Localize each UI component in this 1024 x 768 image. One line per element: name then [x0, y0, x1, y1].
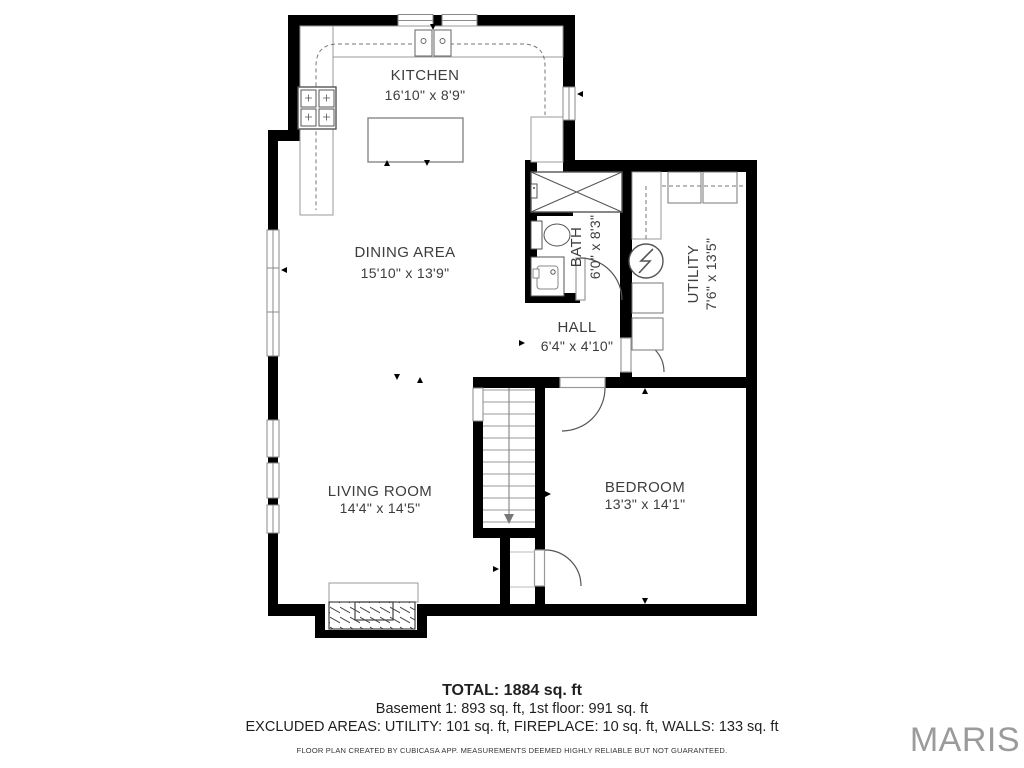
bedroom-door-panel — [560, 378, 605, 388]
walls — [268, 15, 757, 638]
room-label-hall: HALL — [557, 319, 596, 336]
marker — [642, 388, 648, 394]
wall-bedroom-left-upper — [535, 377, 545, 550]
marker — [493, 566, 499, 572]
wall-hall-bottom-right — [605, 377, 757, 388]
floor-plan-drawing: KITCHEN 16'10" x 8'9" DINING AREA 15'10"… — [0, 0, 1024, 768]
kitchen-island — [368, 118, 463, 162]
water-heater — [629, 244, 663, 278]
summary-disclaimer: FLOOR PLAN CREATED BY CUBICASA APP. MEAS… — [0, 746, 1024, 755]
closet-door-panel — [535, 550, 545, 586]
room-dims-hall: 6'4" x 4'10" — [541, 338, 614, 354]
marker — [417, 377, 423, 383]
shower — [531, 172, 622, 212]
maris-logo: MARIS — [910, 721, 1020, 760]
room-dims-bedroom: 13'3" x 14'1" — [605, 496, 686, 512]
vanity-sink — [531, 257, 564, 296]
room-label-dining: DINING AREA — [354, 244, 455, 261]
wall-hall-bottom-left — [473, 377, 560, 388]
utility-door-panel — [621, 338, 631, 372]
marker — [545, 491, 551, 497]
room-dims-living: 14'4" x 14'5" — [340, 500, 421, 516]
closet-door-arc — [545, 550, 581, 586]
plan-summary: TOTAL: 1884 sq. ft Basement 1: 893 sq. f… — [0, 682, 1024, 755]
kitchen-fixtures — [298, 24, 563, 215]
room-dims-utility: 7'6" x 13'5" — [703, 238, 719, 311]
floor-plan-page: KITCHEN 16'10" x 8'9" DINING AREA 15'10"… — [0, 0, 1024, 768]
marker — [642, 598, 648, 604]
toilet — [531, 221, 570, 249]
wall-bedroom-left-lower — [535, 586, 545, 616]
fireplace-box — [329, 602, 415, 629]
fireplace-hearth — [329, 583, 418, 602]
summary-total: TOTAL: 1884 sq. ft — [0, 682, 1024, 700]
wall-bottom-right — [425, 604, 757, 616]
marker — [577, 91, 583, 97]
wall-fireplace-right — [417, 604, 427, 638]
room-label-bath: BATH — [568, 227, 585, 268]
room-dims-kitchen: 16'10" x 8'9" — [385, 87, 466, 103]
utility-box-2 — [632, 318, 663, 350]
wall-left-outer — [268, 130, 278, 616]
stove — [298, 87, 336, 129]
room-label-kitchen: KITCHEN — [391, 67, 460, 84]
marker — [281, 267, 287, 273]
room-label-bedroom: BEDROOM — [605, 479, 685, 496]
fireplace — [329, 583, 418, 629]
room-label-living: LIVING ROOM — [328, 483, 432, 500]
room-dims-bath: 6'0" x 8'3" — [587, 215, 603, 280]
summary-excluded: EXCLUDED AREAS: UTILITY: 101 sq. ft, FIR… — [0, 718, 1024, 736]
room-dims-dining: 15'10" x 13'9" — [361, 265, 450, 281]
washer — [668, 172, 701, 203]
summary-floors: Basement 1: 893 sq. ft, 1st floor: 991 s… — [0, 700, 1024, 718]
marker — [394, 374, 400, 380]
marker — [519, 340, 525, 346]
bedroom-door-arc — [562, 388, 605, 431]
wall-bottom-left — [268, 604, 322, 616]
marker — [424, 160, 430, 166]
wall-bath-utility-top — [563, 160, 757, 172]
dryer — [703, 172, 737, 203]
wall-closet-left — [500, 538, 510, 616]
window-stairwell — [473, 388, 483, 421]
utility-box-1 — [632, 283, 663, 313]
wall-stair-bottom — [473, 528, 545, 538]
wall-fireplace-bottom — [315, 630, 427, 638]
kitchen-counter-right — [531, 117, 563, 162]
room-label-utility: UTILITY — [685, 245, 702, 304]
